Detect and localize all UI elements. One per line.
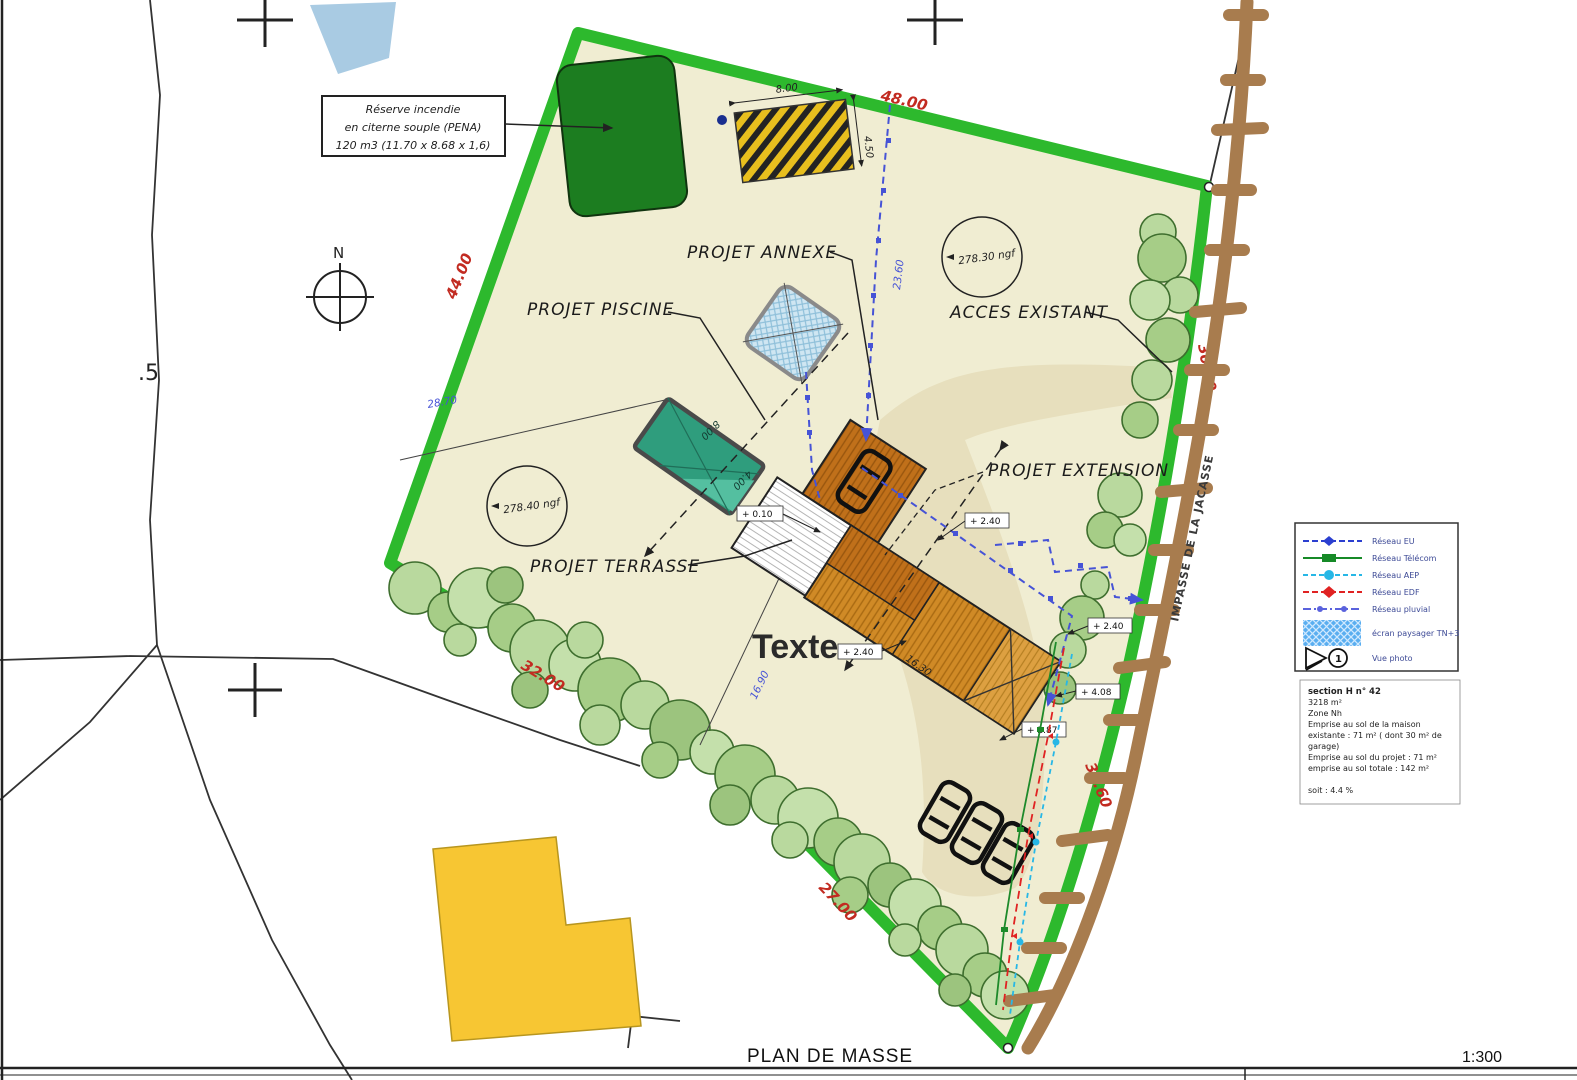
legend-telecom-marker [1322, 554, 1336, 562]
svg-text:section H n° 42: section H n° 42 [1308, 687, 1381, 697]
site-plan-drawing: .5 N [0, 0, 1577, 1080]
note-line-1: Réserve incendie [366, 103, 461, 116]
label-projet-terrasse: PROJET TERRASSE [530, 557, 700, 577]
north-label: N [333, 244, 344, 262]
svg-text:soit : 4.4 %: soit : 4.4 % [1308, 786, 1353, 795]
svg-text:+ 4.08: + 4.08 [1081, 688, 1112, 698]
svg-text:3218 m²: 3218 m² [1308, 698, 1342, 707]
svg-text:Emprise au sol du projet : 71: Emprise au sol du projet : 71 m² [1308, 753, 1437, 762]
survey-cross-2 [907, 0, 963, 45]
parcel-number-fragment: .5 [138, 361, 159, 386]
survey-cross-3 [228, 663, 282, 717]
fire-reserve-cistern [555, 54, 688, 218]
survey-cross-1 [237, 0, 293, 47]
photo-view-number: 1 [1335, 654, 1342, 665]
svg-text:Zone Nh: Zone Nh [1308, 709, 1342, 718]
svg-text:emprise au sol totale : 142 m²: emprise au sol totale : 142 m² [1308, 764, 1429, 773]
svg-text:+ 2.40: + 2.40 [1093, 622, 1124, 632]
svg-text:existante : 71 m² ( dont 30 m²: existante : 71 m² ( dont 30 m² de [1308, 731, 1442, 740]
label-projet-extension: PROJET EXTENSION [988, 461, 1169, 481]
svg-text:+ 2.40: + 2.40 [970, 517, 1001, 527]
legend-label-pluvial: Réseau pluvial [1372, 604, 1430, 614]
dim-northwest: 44.00 [442, 251, 477, 303]
legend-label-aep: Réseau AEP [1372, 570, 1419, 580]
north-compass [306, 263, 374, 331]
legend-box: Réseau EU Réseau Télécom Réseau AEP Rése… [1295, 523, 1459, 671]
legend-label-telecom: Réseau Télécom [1372, 553, 1437, 563]
svg-text:+ 2.40: + 2.40 [843, 648, 874, 658]
label-projet-annexe: PROJET ANNEXE [687, 243, 837, 263]
pena-marker-dot [717, 115, 727, 125]
svg-text:+ 0.10: + 0.10 [742, 510, 773, 520]
drawing-title: PLAN DE MASSE [747, 1046, 913, 1067]
site-plan-canvas: .5 N [0, 0, 1577, 1080]
neighbor-building-yellow [433, 837, 641, 1041]
svg-text:garage): garage) [1308, 742, 1339, 751]
legend-hatch-swatch [1303, 620, 1361, 646]
note-line-3: 120 m3 (11.70 x 8.68 x 1,6) [336, 139, 491, 152]
svg-text:Emprise au sol de la maison: Emprise au sol de la maison [1308, 720, 1421, 729]
label-projet-piscine: PROJET PISCINE [527, 300, 674, 320]
legend-pluvial-marker [1317, 606, 1323, 612]
drawing-scale: 1:300 [1462, 1049, 1502, 1066]
legend-aep-marker [1324, 570, 1334, 580]
note-line-2: en citerne souple (PENA) [345, 121, 482, 134]
legend-label-eu: Réseau EU [1372, 536, 1415, 546]
neighbor-roof-blue [310, 2, 396, 74]
label-texte: Texte [752, 628, 838, 666]
legend-label-photo: Vue photo [1372, 654, 1413, 663]
hazard-striped-pad [734, 99, 854, 182]
info-box: section H n° 42 3218 m² Zone Nh Emprise … [1300, 680, 1460, 804]
label-acces-existant: ACCES EXISTANT [949, 303, 1109, 323]
boundary-point-s [1004, 1044, 1013, 1053]
legend-label-hatch: écran paysager TN+3 [1372, 628, 1459, 638]
legend-label-edf: Réseau EDF [1372, 587, 1420, 597]
